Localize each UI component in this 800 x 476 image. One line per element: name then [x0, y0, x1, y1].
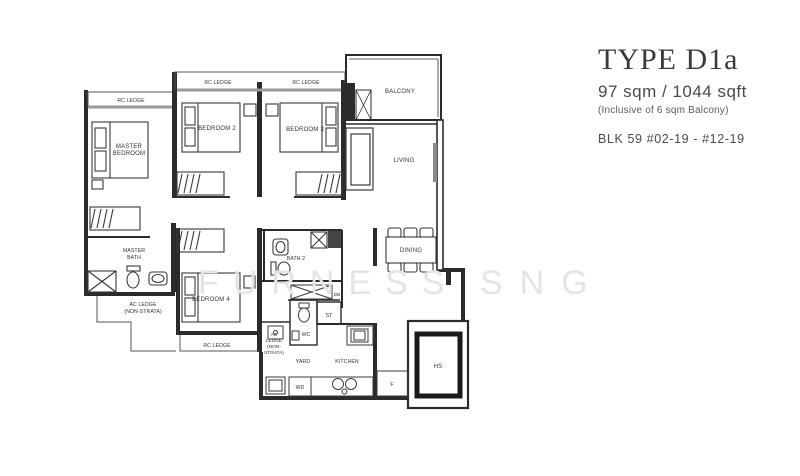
label-ac-ledge-left: AC LEDGE	[129, 302, 156, 308]
bath2-fixtures	[271, 232, 327, 275]
balcony-sliding-door	[346, 120, 437, 124]
label-master-bath-2: BATH	[127, 255, 141, 261]
label-wd: WD	[296, 385, 305, 391]
label-balcony: BALCONY	[385, 89, 415, 95]
label-living: LIVING	[394, 158, 415, 164]
label-yard: YARD	[296, 359, 311, 365]
label-master-bath: MASTER	[123, 248, 145, 254]
label-master-bedroom: MASTER	[116, 144, 143, 150]
label-bedroom3: BEDROOM 3	[286, 127, 324, 133]
floor-plan-page: FURNESS SNG TYPE D1a 97 sqm / 1044 sqft …	[0, 0, 800, 476]
label-master-bedroom-2: BEDROOM	[113, 151, 145, 157]
label-ac-ledge-mid: AC	[271, 332, 278, 338]
label-ac-ledge-mid-2: LEDGE	[266, 338, 282, 344]
label-fridge: F	[390, 382, 393, 388]
master-bath-fixtures	[88, 266, 167, 292]
wardrobes	[90, 172, 342, 252]
unit-area: 97 sqm / 1044 sqft	[598, 82, 747, 102]
label-rc-ledge-bottom: RC LEDGE	[203, 343, 231, 349]
label-ac-ledge-mid-4: STRATA)	[264, 350, 284, 356]
living-right-wall	[437, 120, 443, 270]
label-ac-ledge-left-2: (NON-STRATA)	[124, 309, 162, 315]
label-bedroom2: BEDROOM 2	[198, 126, 236, 132]
label-rc-ledge-bed2: RC LEDGE	[204, 80, 232, 86]
label-bedroom4: BEDROOM 4	[192, 297, 230, 303]
label-dining: DINING	[400, 248, 422, 254]
label-kitchen: KITCHEN	[335, 359, 359, 365]
curtain-wall-marker	[433, 143, 437, 182]
unit-type-title: TYPE D1a	[598, 44, 747, 76]
bath2-column	[328, 231, 341, 248]
balcony-walls	[346, 55, 441, 120]
label-db: DB	[334, 292, 341, 298]
sofa	[346, 128, 373, 190]
title-block: TYPE D1a 97 sqm / 1044 sqft (Inclusive o…	[598, 44, 747, 146]
db-box	[291, 285, 332, 299]
label-wc: WC	[302, 332, 311, 338]
label-rc-ledge-master: RC LEDGE	[117, 98, 145, 104]
block-unit-numbers: BLK 59 #02-19 - #12-19	[598, 132, 747, 146]
label-ac-ledge-mid-3: (NON-	[267, 344, 281, 350]
label-rc-ledge-bed3: RC LEDGE	[292, 80, 320, 86]
service-walls	[373, 228, 377, 396]
label-hs: HS	[434, 364, 443, 370]
label-st: ST	[326, 313, 334, 319]
balcony-inclusion-note: (Inclusive of 6 sqm Balcony)	[598, 105, 747, 116]
label-bath2: BATH 2	[287, 256, 305, 262]
